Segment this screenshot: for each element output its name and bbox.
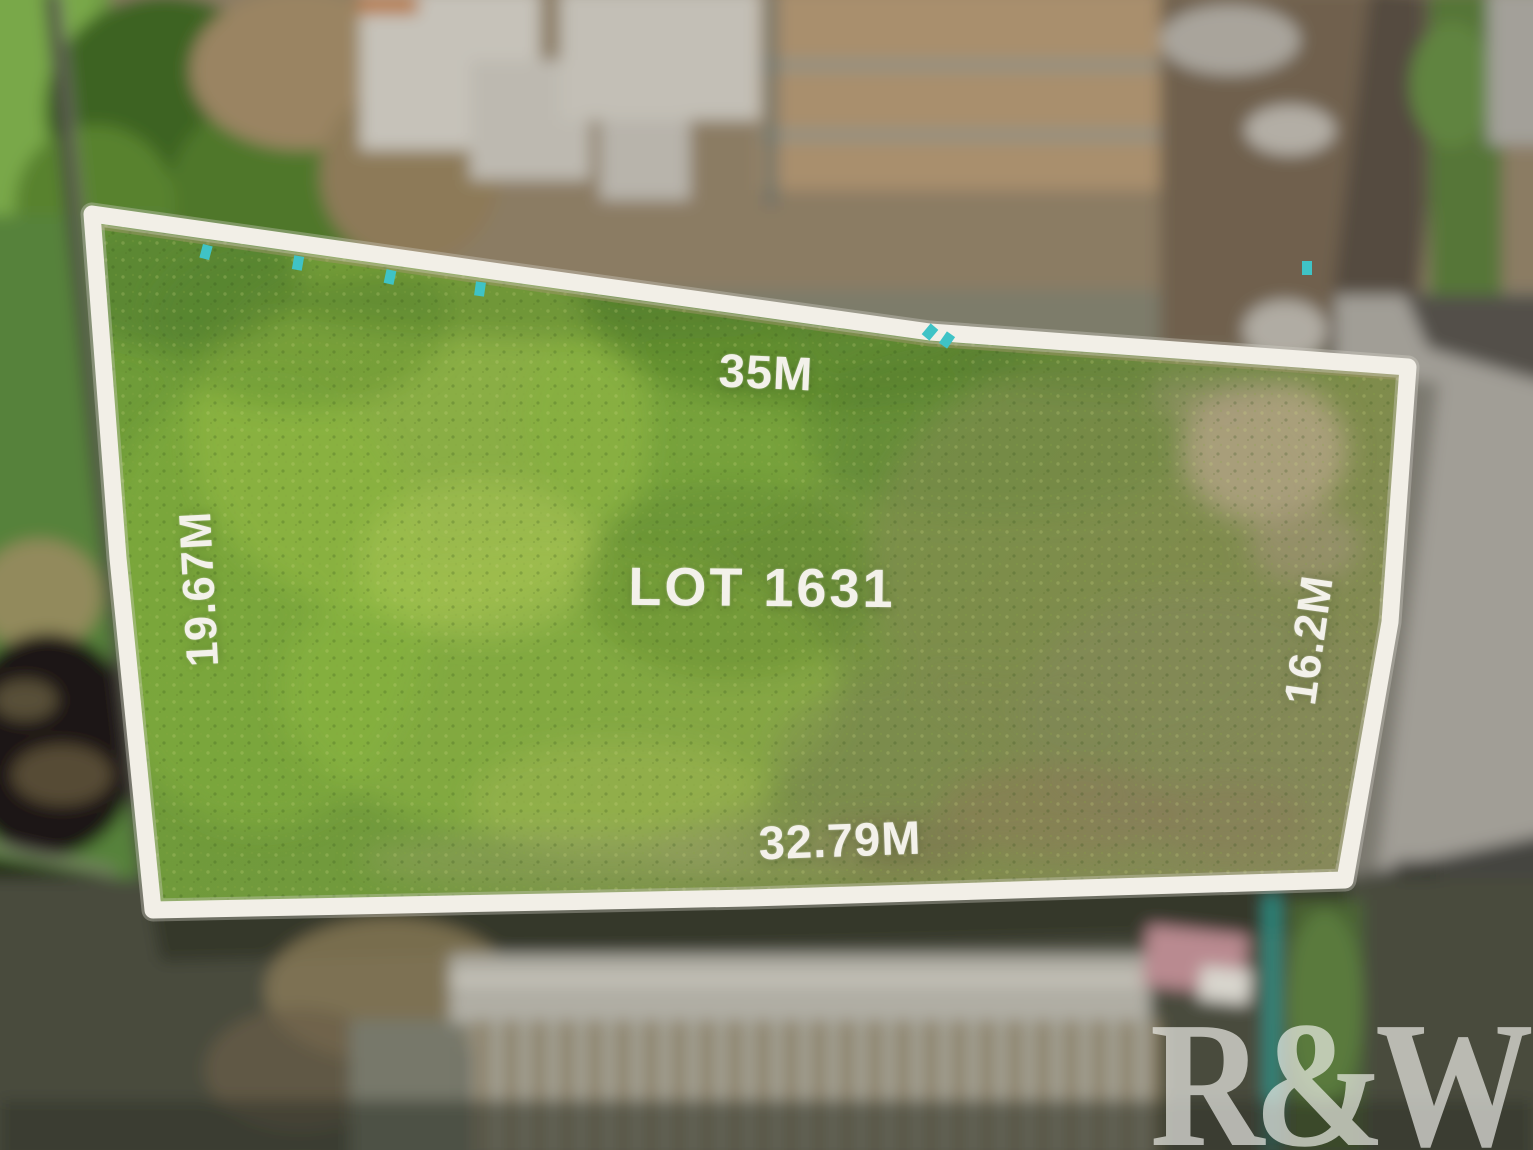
dimension-top-label: 35M xyxy=(718,342,815,401)
aerial-lot-photo: 35M LOT 1631 19.67M 16.2M 32.79M R&W xyxy=(0,0,1533,1150)
agency-watermark: R&W xyxy=(1150,995,1523,1150)
dimension-bottom-label: 32.79M xyxy=(758,810,923,871)
lot-number-label: LOT 1631 xyxy=(628,556,896,620)
dimension-left-label: 19.67M xyxy=(169,510,229,669)
